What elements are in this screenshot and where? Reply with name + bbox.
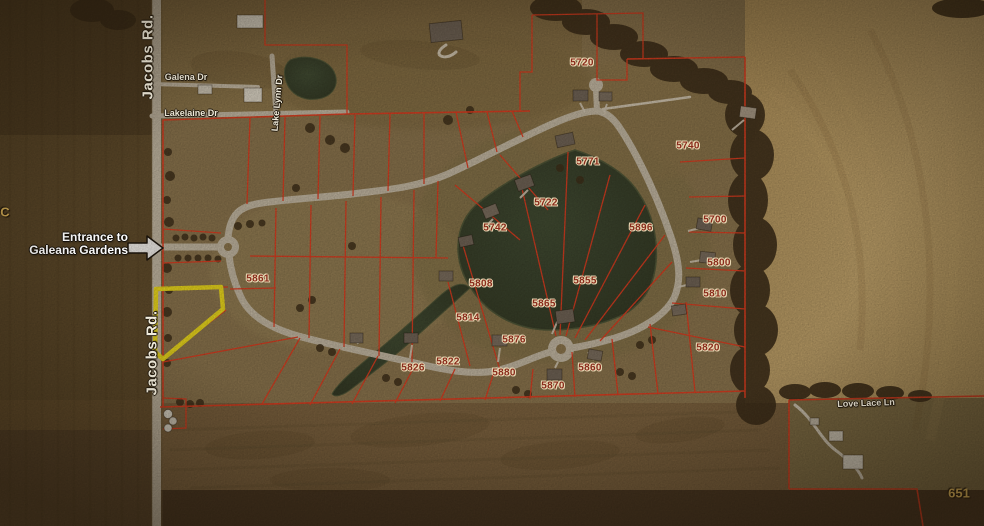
aerial-plat-map: Jacobs Rd.Jacobs Rd.Galena DrLakelaine D… [0, 0, 984, 526]
entrance-callout: Entrance to Galeana Gardens [8, 231, 128, 257]
aerial-photo [0, 0, 984, 526]
entrance-callout-line2: Galeana Gardens [8, 244, 128, 257]
